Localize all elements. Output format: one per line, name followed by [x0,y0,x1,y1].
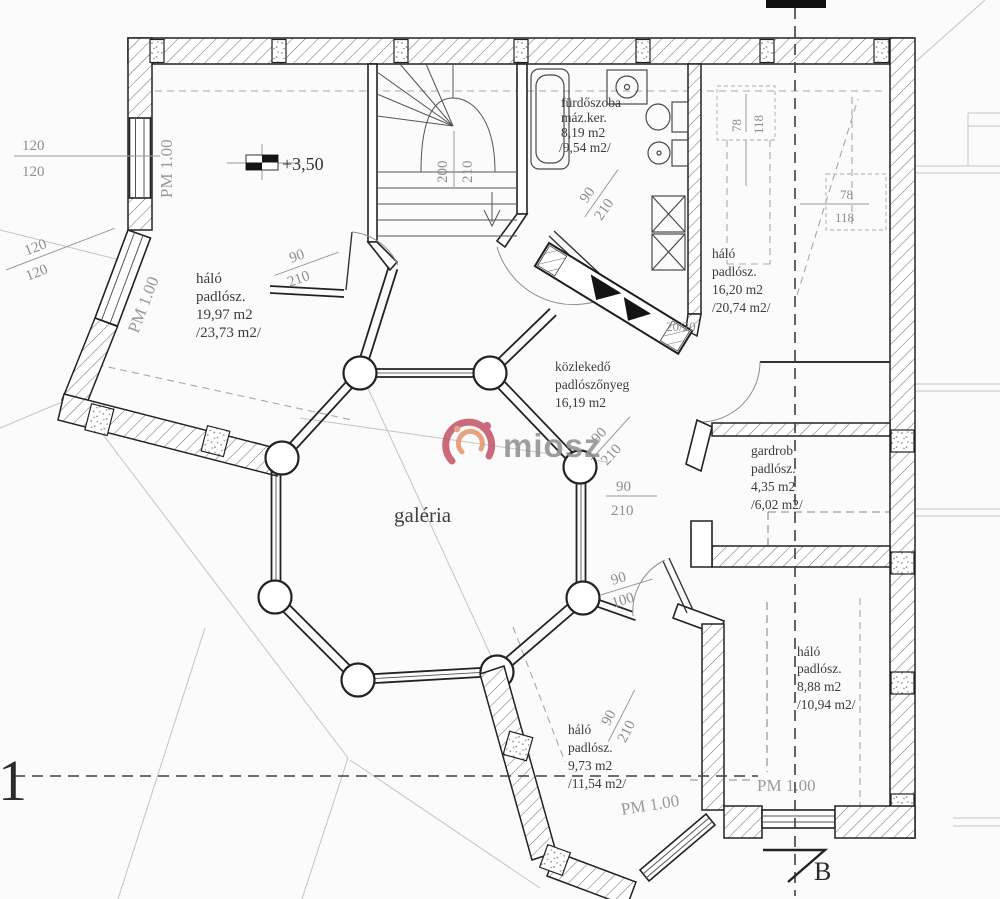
svg-text:/11,54 m2/: /11,54 m2/ [568,776,626,791]
miosz-logo-icon [446,422,492,461]
room-bathroom-label: fürdőszoba máz.ker. 8,19 m2 /9,54 m2/ [559,95,621,155]
room-bedroom-right-label: háló padlósz. 16,20 m2 /20,74 m2/ [712,246,771,315]
floorplan-screenshot: 1 B +3,50 120 120 PM 1.00 120 120 PM 1.0… [0,0,1000,899]
svg-text:/9,54 m2/: /9,54 m2/ [559,140,611,155]
svg-text:90: 90 [287,247,307,267]
svg-text:210: 210 [460,161,476,184]
wall-bath-bedroom [688,64,701,314]
svg-text:19,97 m2: 19,97 m2 [196,307,253,323]
svg-text:16,20 m2: 16,20 m2 [712,282,763,297]
dim-door-bedroom-left: 90 210 [268,235,345,294]
svg-text:/20,74 m2/: /20,74 m2/ [712,300,771,315]
svg-text:90: 90 [577,185,599,206]
room-bedroom-se-label: háló padlósz. 8,88 m2 /10,94 m2/ [797,644,856,712]
level-marker: +3,50 [227,144,324,180]
svg-text:118: 118 [835,210,854,225]
svg-text:háló: háló [797,644,820,659]
window-left-upper [130,118,151,198]
dim-chimney: 20/20 [666,319,696,334]
dim-opening-gallery: 90 100 [596,562,659,614]
dim-door-bathroom: 90 210 [570,159,634,228]
dim-opening-hall: 90 210 [606,479,657,519]
window-s [640,814,715,881]
svg-text:8,19 m2: 8,19 m2 [561,125,605,140]
dim-dormer-top: 78 118 [717,86,775,186]
svg-text:/6,02 m2/: /6,02 m2/ [751,497,803,512]
svg-text:210: 210 [598,441,625,468]
svg-text:/23,73 m2/: /23,73 m2/ [196,325,262,341]
svg-text:padlósz.: padlósz. [751,461,796,476]
wardrobe-wall-top [712,423,890,436]
svg-text:padlósz.: padlósz. [797,661,842,676]
room-bedroom-left-label: háló padlósz. 19,97 m2 /23,73 m2/ [196,271,262,341]
stair-treads [377,64,517,236]
wardrobe-door-leaf [686,420,712,471]
room-gallery-label: galéria [394,503,452,527]
svg-text:78: 78 [840,187,853,202]
svg-text:4,35 m2: 4,35 m2 [751,479,795,494]
svg-text:118: 118 [751,115,766,134]
bedroom-s-door [633,558,693,616]
svg-text:közlekedő: közlekedő [555,359,611,374]
outer-walls [58,38,915,838]
svg-text:100: 100 [610,590,636,612]
section-marker-1: 1 [0,748,27,813]
svg-text:háló: háló [712,246,735,261]
svg-text:120: 120 [22,236,49,259]
svg-text:háló: háló [196,271,222,287]
svg-text:78: 78 [729,119,744,132]
radiator-icon [652,196,685,270]
watermark: miosz [446,422,602,464]
dim-stair: 200 210 [435,131,476,187]
wardrobe-wall-bottom [712,546,890,567]
svg-text:210: 210 [611,503,634,519]
stair-direction-arrow [484,192,500,226]
svg-text:9,73 m2: 9,73 m2 [568,758,612,773]
dim-pm-window-1: PM 1.00 [157,139,176,198]
svg-text:120: 120 [22,164,45,180]
svg-text:8,88 m2: 8,88 m2 [797,679,841,694]
svg-text:gardrob: gardrob [751,443,793,458]
svg-text:16,19 m2: 16,19 m2 [555,395,606,410]
window-se [762,810,835,828]
dim-pm-bedroom-s: PM 1.00 [620,791,681,819]
watermark-brand: miosz [503,427,602,464]
svg-text:padlósz.: padlósz. [712,264,757,279]
svg-text:/10,94 m2/: /10,94 m2/ [797,697,856,712]
section-marker-b: B [814,857,831,886]
room-hall-label: közlekedő padlószőnyeg 16,19 m2 [555,359,629,410]
level-value: +3,50 [282,154,324,174]
svg-text:fürdőszoba: fürdőszoba [561,95,621,110]
floor-plan-canvas: 1 B +3,50 120 120 PM 1.00 120 120 PM 1.0… [0,0,1000,899]
dim-dormer-right: 78 118 [800,174,886,230]
svg-text:120: 120 [23,262,50,285]
svg-text:90: 90 [609,569,628,589]
svg-text:padlósz.: padlósz. [196,289,246,305]
svg-text:90: 90 [616,479,631,495]
svg-text:háló: háló [568,722,591,737]
dim-window-left-2: 120 120 [0,211,123,290]
stair-wall-left [368,64,377,242]
svg-text:padlósz.: padlósz. [568,740,613,755]
chimney [535,243,692,354]
svg-text:120: 120 [22,138,45,154]
svg-text:210: 210 [591,196,617,224]
toilet-icon [646,102,688,132]
section-flag-top [766,0,826,8]
bidet-icon [648,140,688,166]
svg-text:padlószőnyeg: padlószőnyeg [555,377,629,392]
svg-text:200: 200 [435,161,451,184]
svg-text:máz.ker.: máz.ker. [561,110,607,125]
stair-wall-right [517,64,527,214]
dim-pm-bedroom-se: PM 1.00 [757,776,816,795]
